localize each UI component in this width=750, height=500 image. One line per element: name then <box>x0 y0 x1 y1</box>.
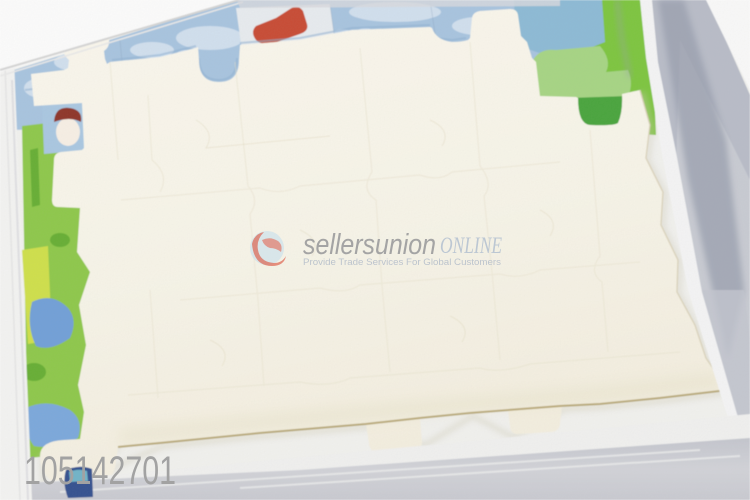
svg-text:Provide Trade Services For Glo: Provide Trade Services For Global Custom… <box>303 257 501 268</box>
svg-text:ONLINE: ONLINE <box>440 233 502 258</box>
svg-text:105142701: 105142701 <box>24 449 176 493</box>
